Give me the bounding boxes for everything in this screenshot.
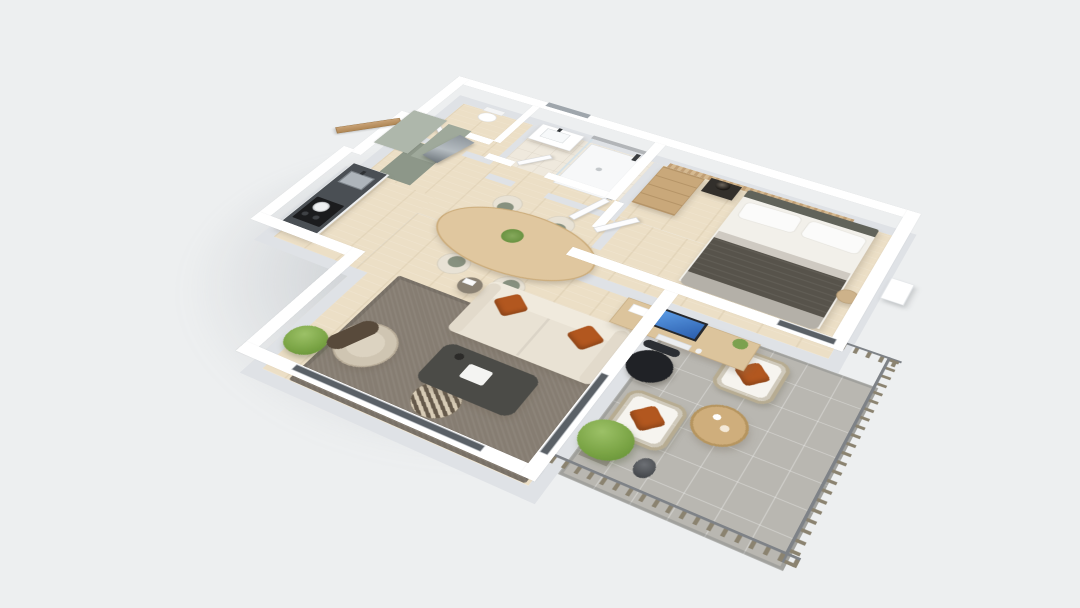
apartment-plan — [87, 87, 936, 608]
sofa-cushion-divider — [516, 318, 551, 356]
isometric-stage — [0, 0, 1080, 608]
floorplan-render-canvas — [0, 0, 1080, 608]
